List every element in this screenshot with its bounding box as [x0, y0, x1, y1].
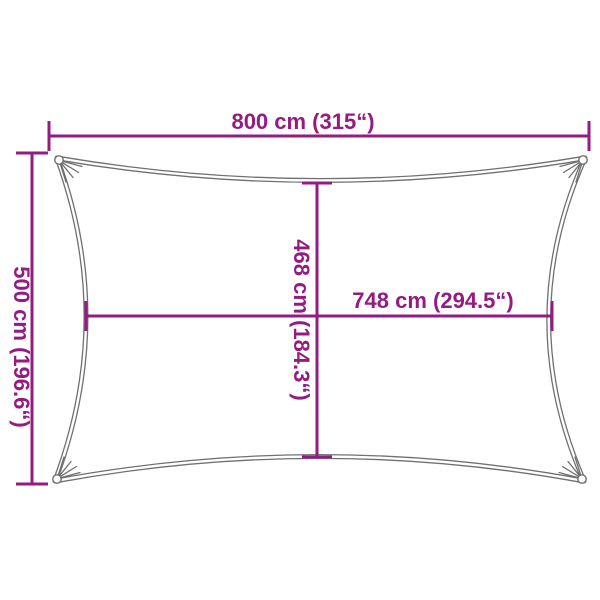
sail-shape [53, 156, 587, 483]
sail-outline-inner-gap [55, 158, 585, 481]
width-dimension-label: 800 cm (315“) [231, 109, 374, 134]
diagram-canvas: 800 cm (315“) 500 cm (196.6“) 468 cm (18… [0, 0, 600, 600]
sail-outline-outer [55, 158, 585, 481]
sail-corner-details [53, 156, 587, 483]
shade-sail-dimension-diagram: 800 cm (315“) 500 cm (196.6“) 468 cm (18… [0, 0, 600, 600]
inner-width-dimension-label: 748 cm (294.5“) [352, 288, 513, 313]
inner-height-dimension-label: 468 cm (184.3“) [289, 239, 314, 400]
height-dimension-label: 500 cm (196.6“) [9, 266, 34, 427]
